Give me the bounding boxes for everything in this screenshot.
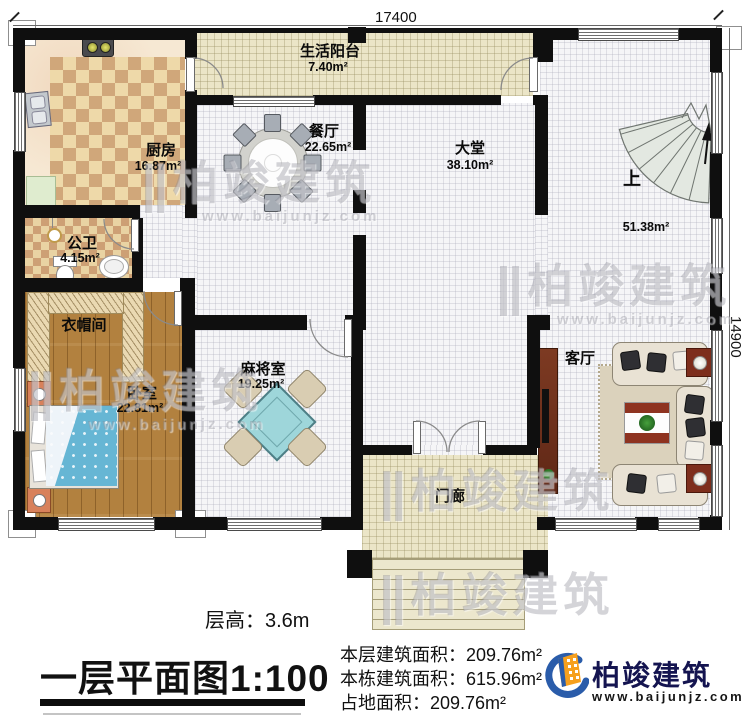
room-label-living: 客厅	[565, 351, 595, 366]
wall	[698, 517, 722, 530]
title-underline	[40, 699, 305, 706]
wall	[351, 315, 363, 517]
dining-chair	[264, 194, 281, 212]
wall	[320, 517, 363, 530]
wall	[13, 517, 58, 530]
room-area-stairs: 51.38m²	[623, 221, 670, 234]
sofa-right	[676, 386, 714, 468]
plant-icon	[639, 415, 655, 431]
wardrobe-top	[48, 292, 124, 314]
plant-icon	[543, 469, 554, 480]
dining-chair	[304, 155, 322, 172]
sheet-title: 一层平面图1:100	[40, 648, 330, 702]
wall	[195, 315, 307, 330]
burner-icon	[100, 42, 111, 53]
window	[227, 518, 322, 531]
room-area-dining: 22.65m²	[305, 141, 352, 154]
door-leaf	[529, 57, 538, 92]
dining-table-center	[264, 154, 282, 172]
basin-icon	[99, 255, 129, 279]
window	[578, 28, 679, 41]
door-leaf	[174, 291, 182, 326]
sink-basin	[30, 95, 46, 109]
dining-chair	[224, 155, 242, 172]
title-underline-thin	[43, 713, 301, 715]
wall	[13, 28, 25, 92]
floor-kitchen	[50, 57, 185, 205]
dining-chair	[264, 114, 281, 132]
room-area-kitchen: 16.87m²	[135, 160, 182, 173]
room-area-hall: 38.10m²	[447, 159, 494, 172]
window	[711, 218, 723, 274]
cushion	[646, 352, 667, 373]
wall	[182, 292, 195, 517]
wall	[635, 517, 658, 530]
porch-column	[523, 550, 548, 578]
lamp-icon	[33, 388, 46, 401]
wall	[313, 95, 501, 105]
floor-plan-sheet: 17400 14900 生活阳台 7.40m² 厨房 16.87m² 餐厅 22…	[0, 0, 750, 720]
stat-land-area: 占地面积：209.76m²	[340, 689, 506, 715]
wall	[13, 28, 185, 40]
window	[58, 518, 155, 531]
wall	[180, 278, 195, 292]
fridge-icon	[26, 176, 56, 208]
porch-steps	[372, 558, 525, 630]
coffee-table	[624, 402, 670, 444]
window	[233, 96, 315, 107]
window	[711, 72, 723, 154]
tv-cabinet	[538, 348, 558, 494]
wall	[13, 430, 25, 530]
wall	[13, 150, 25, 368]
room-label-bathroom: 公卫	[67, 236, 97, 251]
wall	[483, 445, 537, 455]
window	[711, 445, 723, 517]
cushion	[620, 350, 641, 371]
room-area-mahjong: 19.25m²	[238, 378, 285, 391]
cushion	[656, 473, 677, 494]
tv-icon	[542, 389, 549, 443]
room-label-kitchen: 厨房	[146, 143, 176, 158]
wardrobe-right	[122, 292, 144, 382]
dimension-right: 14900	[727, 316, 744, 358]
lamp-icon	[33, 494, 46, 507]
pillow	[31, 449, 48, 482]
room-label-balcony: 生活阳台	[300, 44, 360, 59]
window	[658, 518, 700, 531]
room-label-hall: 大堂	[455, 141, 485, 156]
wall	[710, 28, 722, 72]
sheet-title-text: 一层平面图	[40, 658, 230, 699]
window	[14, 368, 26, 432]
stat-building-area: 本栋建筑面积：615.96m²	[340, 665, 542, 691]
door-leaf	[131, 219, 139, 252]
room-label-bedroom: 卧室	[127, 386, 157, 401]
basin-inner	[104, 259, 124, 274]
burner-icon	[87, 42, 98, 53]
door-leaf	[186, 57, 195, 92]
cushion	[684, 394, 705, 415]
brand-website: www.baijunjz.com	[592, 689, 744, 704]
room-label-cloakroom: 衣帽间	[61, 318, 106, 333]
floor-corridor	[140, 205, 185, 278]
nightstand	[27, 487, 51, 513]
wall	[13, 278, 143, 292]
wall	[710, 152, 722, 218]
room-area-balcony: 7.40m²	[308, 61, 348, 74]
wall	[13, 205, 140, 218]
wall	[527, 315, 550, 330]
wall	[353, 103, 366, 150]
cushion	[684, 440, 705, 461]
window	[555, 518, 637, 531]
door-leaf	[344, 319, 352, 357]
end-table	[686, 464, 714, 493]
room-area-bedroom: 22.81m²	[117, 402, 164, 415]
lamp-icon	[693, 356, 707, 370]
door-leaf	[413, 421, 421, 454]
wall	[533, 95, 548, 105]
floor-height-label: 层高：3.6m	[205, 604, 309, 633]
table-band	[625, 403, 669, 413]
wall-column	[348, 27, 366, 43]
dimension-top: 17400	[375, 9, 417, 26]
sink-basin	[31, 110, 47, 124]
nightstand	[27, 381, 51, 407]
spiral-stairs	[612, 100, 716, 212]
room-label-dining: 餐厅	[309, 124, 339, 139]
porch-column	[347, 550, 372, 578]
room-area-bathroom: 4.15m²	[60, 252, 100, 265]
cushion	[685, 417, 706, 438]
wall-pillar	[353, 190, 366, 213]
cushion	[626, 473, 647, 494]
wall	[187, 95, 233, 105]
wall	[710, 420, 722, 445]
end-table	[686, 348, 714, 377]
sheet-scale: 1:100	[230, 658, 330, 699]
wall	[358, 445, 412, 455]
brand-name: 柏竣建筑	[592, 654, 712, 694]
wall	[553, 28, 578, 40]
lamp-icon	[693, 472, 707, 486]
table-band	[625, 433, 669, 443]
wardrobe-left	[27, 292, 50, 382]
floor-opening	[535, 215, 548, 315]
room-label-stairs-up: 上	[623, 170, 641, 188]
kitchen-sink-icon	[24, 91, 52, 128]
bed	[29, 405, 119, 489]
room-label-mahjong: 麻将室	[240, 362, 285, 377]
wall	[353, 235, 366, 330]
wall	[535, 105, 548, 215]
wall	[710, 272, 722, 330]
window	[14, 92, 26, 152]
wall	[185, 90, 197, 218]
floor-porch	[362, 455, 548, 558]
room-label-porch: 门廊	[435, 489, 465, 504]
door-leaf	[478, 421, 486, 454]
window	[711, 330, 723, 422]
pillow	[31, 411, 48, 444]
wall	[153, 517, 227, 530]
lamp-icon	[47, 228, 62, 243]
dimension-tick	[713, 10, 724, 21]
wall	[527, 330, 540, 448]
brand-logo-icon	[545, 650, 589, 706]
dimension-line-top	[13, 25, 722, 26]
stat-floor-area: 本层建筑面积：209.76m²	[340, 641, 542, 667]
wall	[537, 517, 555, 530]
dimension-line-right	[729, 28, 730, 530]
